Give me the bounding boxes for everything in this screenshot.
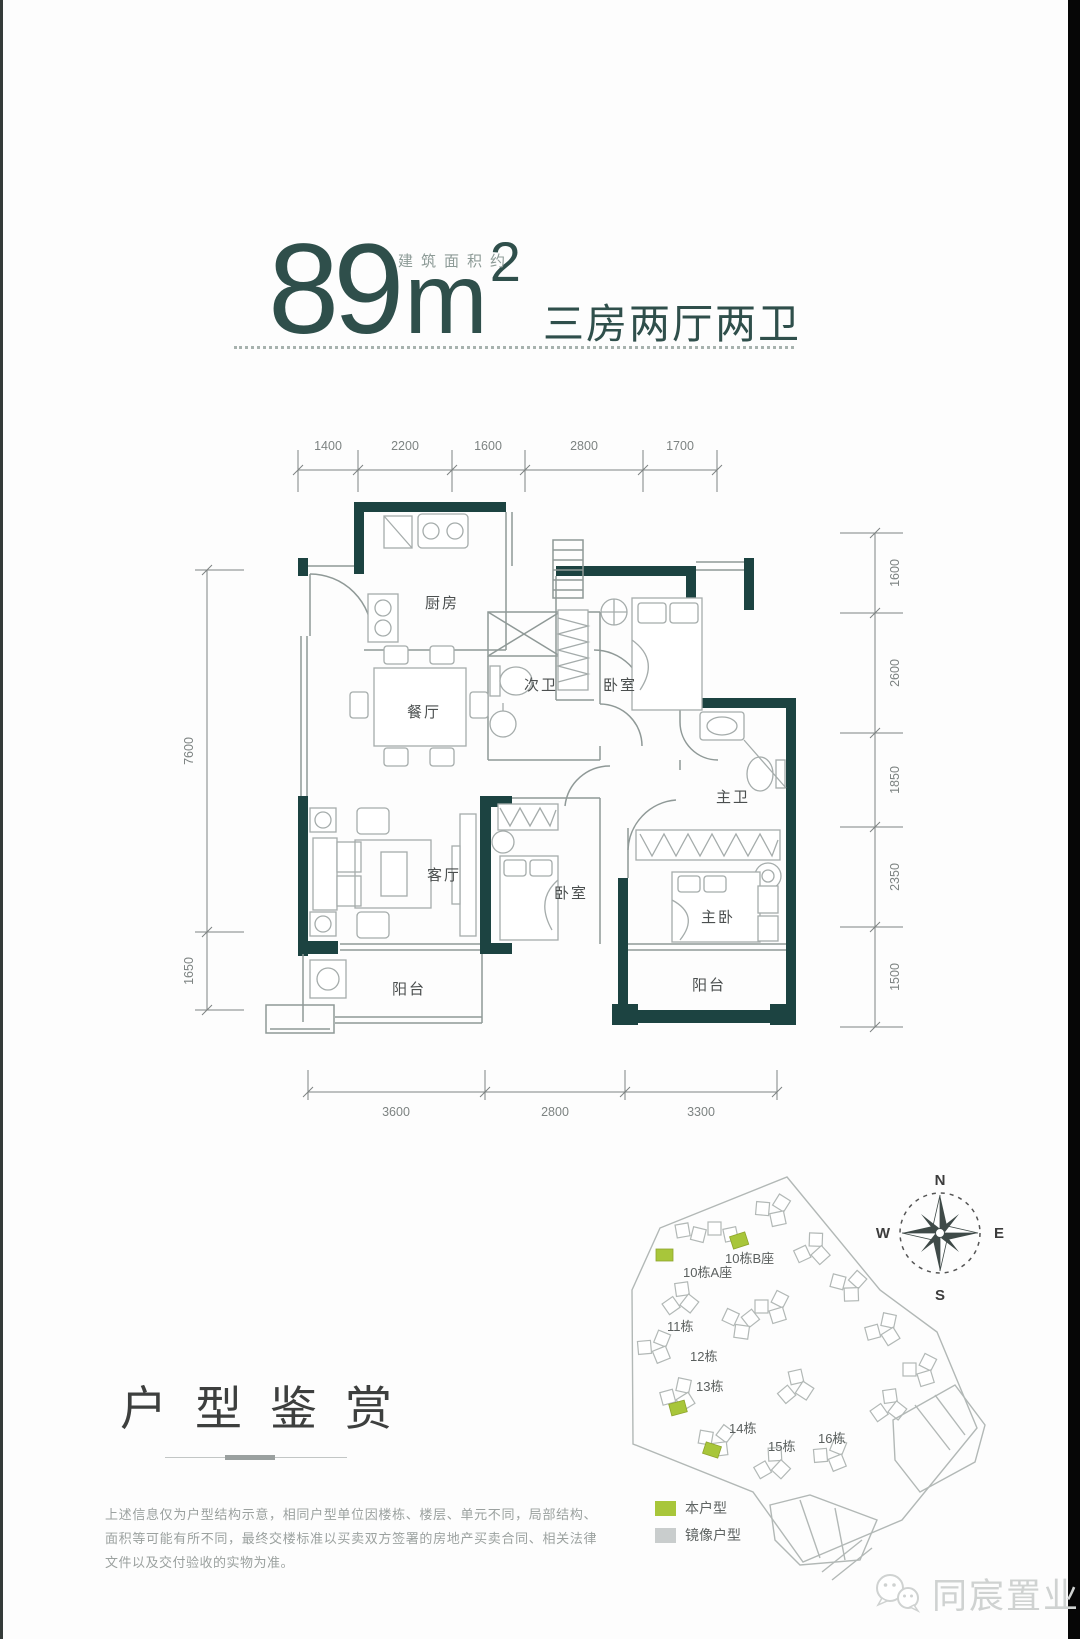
legend-item-mirror: 镜像户型 <box>655 1525 741 1545</box>
heading-underline <box>165 1457 347 1458</box>
bldg-label-13: 13栋 <box>696 1379 723 1394</box>
dim-bottom-2: 2800 <box>541 1105 569 1119</box>
compass-w: W <box>876 1225 891 1242</box>
room-label-living: 客厅 <box>427 867 461 884</box>
dim-right-2: 2600 <box>888 659 902 687</box>
legend-swatch-gray <box>655 1528 676 1543</box>
legend-label-current: 本户型 <box>685 1498 727 1518</box>
plan-partitions <box>266 512 786 1033</box>
dim-top-2: 2200 <box>391 439 419 453</box>
bldg-label-11: 11栋 <box>667 1319 694 1334</box>
dim-left-2: 1650 <box>182 957 196 985</box>
bldg-label-16: 16栋 <box>818 1431 845 1446</box>
compass-n: N <box>935 1172 946 1189</box>
room-label-bedroom-mid: 卧室 <box>554 885 588 902</box>
disclaimer-text: 上述信息仅为户型结构示意，相同户型单位因楼栋、楼层、单元不同，局部结构、面积等可… <box>105 1503 597 1575</box>
bldg-label-14: 14栋 <box>729 1421 756 1436</box>
dim-left-1: 7600 <box>182 737 196 765</box>
bldg-label-10b: 10栋B座 <box>725 1251 774 1266</box>
compass-s: S <box>935 1287 945 1304</box>
room-label-master-bath: 主卫 <box>716 789 750 806</box>
dim-right-4: 2350 <box>888 863 902 891</box>
legend-label-mirror: 镜像户型 <box>685 1525 741 1545</box>
legend-swatch-green <box>655 1501 676 1516</box>
room-label-master-bedroom: 主卧 <box>701 909 735 926</box>
dim-right-5: 1500 <box>888 963 902 991</box>
bldg-label-12: 12栋 <box>690 1349 717 1364</box>
room-label-balcony-left: 阳台 <box>392 981 426 998</box>
room-label-dining: 餐厅 <box>407 704 441 721</box>
dim-top-4: 2800 <box>570 439 598 453</box>
legend-item-current: 本户型 <box>655 1498 741 1518</box>
room-label-second-bath: 次卫 <box>524 677 558 694</box>
dim-bottom-1: 3600 <box>382 1105 410 1119</box>
dim-right-1: 1600 <box>888 559 902 587</box>
wechat-icon <box>872 1572 924 1616</box>
room-label-balcony-right: 阳台 <box>692 977 726 994</box>
compass-e: E <box>994 1225 1004 1242</box>
dim-right-3: 1850 <box>888 766 902 794</box>
dim-bottom-3: 3300 <box>687 1105 715 1119</box>
compass-rose: N E S W <box>876 1172 1004 1304</box>
brand-watermark: 同宸置业 <box>872 1568 1080 1619</box>
dim-top-5: 1700 <box>666 439 694 453</box>
dim-top-1: 1400 <box>314 439 342 453</box>
plan-walls <box>298 502 796 1025</box>
bldg-label-10a: 10栋A座 <box>683 1265 732 1280</box>
bldg-label-15: 15栋 <box>768 1439 795 1454</box>
flyer-page: 89m2 建筑面积约 三房两厅两卫 <box>0 0 1080 1639</box>
room-label-kitchen: 厨房 <box>425 595 459 612</box>
dim-top-3: 1600 <box>474 439 502 453</box>
section-heading: 户型鉴赏 <box>120 1370 420 1439</box>
brand-name: 同宸置业 <box>932 1568 1080 1619</box>
sitemap-legend: 本户型 镜像户型 <box>655 1498 741 1552</box>
room-label-bedroom-top: 卧室 <box>603 677 637 694</box>
